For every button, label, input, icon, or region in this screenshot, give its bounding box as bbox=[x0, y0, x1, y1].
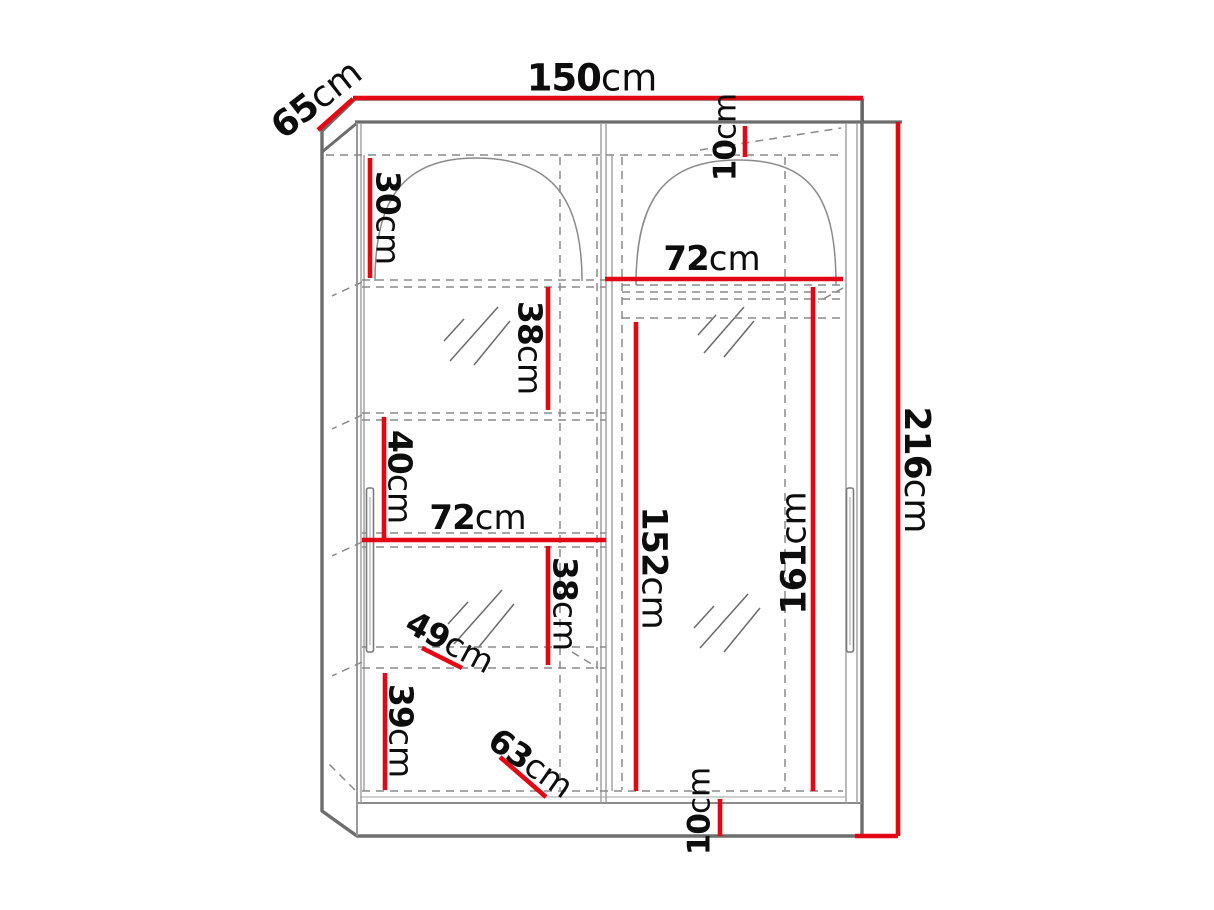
dim-unit: cm bbox=[709, 239, 761, 279]
dim-value: 10 bbox=[682, 814, 718, 855]
dim-unit: cm bbox=[601, 57, 657, 100]
dim-value: 39 bbox=[382, 684, 421, 728]
dim-label-overall-height: 216cm bbox=[898, 406, 934, 533]
dim-value: 40 bbox=[381, 430, 420, 474]
dim-label-right-hanging-height: 161cm bbox=[778, 491, 813, 614]
dim-unit: cm bbox=[381, 474, 420, 524]
dim-value: 150 bbox=[527, 57, 601, 100]
dim-value: 216 bbox=[896, 406, 937, 478]
dim-unit: cm bbox=[369, 215, 408, 265]
dim-label-upper-compartment: 38cm bbox=[514, 301, 547, 395]
dim-value: 72 bbox=[429, 498, 474, 538]
dim-label-lower-compartment: 38cm bbox=[549, 557, 582, 651]
dim-label-bottom-compartment: 39cm bbox=[385, 684, 418, 778]
wardrobe-drawing bbox=[0, 0, 1214, 910]
dim-value: 10 bbox=[708, 140, 744, 181]
dim-unit: cm bbox=[382, 728, 421, 778]
dim-value: 72 bbox=[663, 239, 708, 279]
dim-label-left-hanging-height: 152cm bbox=[636, 506, 671, 629]
dim-value: 161 bbox=[775, 545, 815, 615]
dim-unit: cm bbox=[708, 93, 744, 140]
dim-label-overall-width: 150cm bbox=[527, 60, 658, 97]
dim-unit: cm bbox=[682, 767, 718, 814]
dim-unit: cm bbox=[546, 601, 585, 651]
dim-unit: cm bbox=[634, 576, 674, 629]
dim-value: 38 bbox=[511, 301, 550, 345]
dim-unit: cm bbox=[896, 479, 937, 534]
dim-value: 30 bbox=[369, 171, 408, 215]
dim-label-top-shelf-height: 30cm bbox=[372, 171, 405, 265]
dim-value: 152 bbox=[634, 506, 674, 576]
dim-label-middle-compartment: 40cm bbox=[384, 430, 417, 524]
dim-label-top-clearance: 10cm bbox=[711, 93, 742, 181]
dim-value: 38 bbox=[546, 557, 585, 601]
dim-label-plinth-height: 10cm bbox=[685, 767, 716, 855]
dim-label-left-section-width: 72cm bbox=[429, 501, 526, 535]
wardrobe-dimension-diagram: 150cm 65cm 216cm 10cm 72cm 30cm 38cm 40c… bbox=[0, 0, 1214, 910]
dim-unit: cm bbox=[475, 498, 527, 538]
dim-unit: cm bbox=[511, 345, 550, 395]
dim-label-right-section-width: 72cm bbox=[663, 242, 760, 276]
dim-unit: cm bbox=[775, 491, 815, 544]
